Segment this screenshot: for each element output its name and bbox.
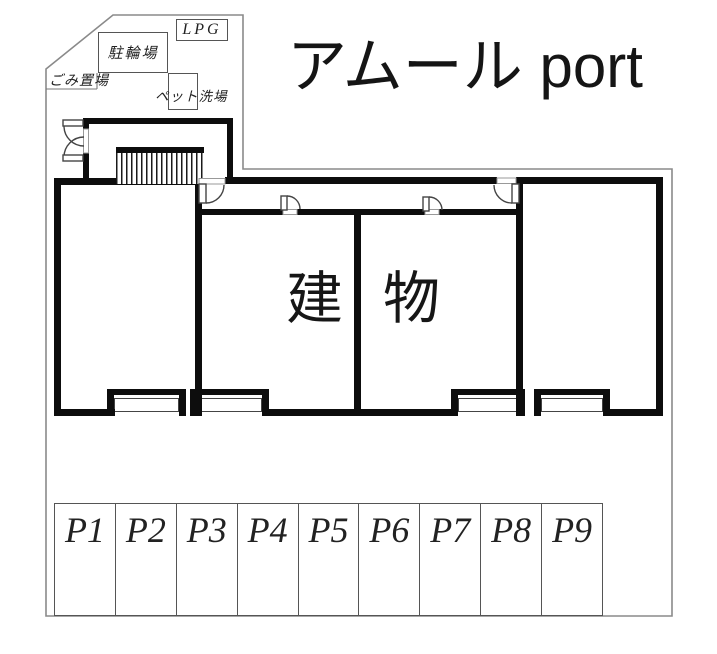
door4-sill (497, 178, 516, 184)
door1-leaf (199, 184, 206, 203)
bicycle-parking-box: 駐輪場 (98, 32, 168, 73)
garbage-area-label: ごみ置場 (49, 70, 109, 90)
site-title: アムール port (287, 34, 643, 100)
door1-arc (206, 185, 224, 203)
site-plan: LPG 駐輪場 ペット洗場 ごみ置場 アムール port 建 物 P1 P2 P… (0, 0, 717, 654)
door4-arc (494, 185, 512, 203)
bicycle-parking-label: 駐輪場 (107, 42, 158, 63)
door2-leaf (281, 196, 287, 210)
door3-leaf (423, 197, 429, 211)
double-door-sill (84, 129, 89, 153)
lpg-box: LPG (176, 19, 228, 41)
double-door-bottom-arc (64, 137, 84, 157)
building-label-char2: 物 (383, 271, 440, 328)
door3-arc (429, 197, 442, 210)
double-door-top-arc (64, 126, 84, 146)
pet-wash-label: ペット洗場 (155, 85, 228, 105)
lpg-label: LPG (182, 21, 221, 39)
door4-leaf (512, 184, 519, 203)
door1-sill (199, 179, 225, 185)
double-door-top-leaf (63, 120, 83, 126)
building-label-char1: 建 (286, 271, 343, 328)
double-door-bottom-leaf (63, 155, 83, 161)
door2-arc (287, 196, 300, 209)
